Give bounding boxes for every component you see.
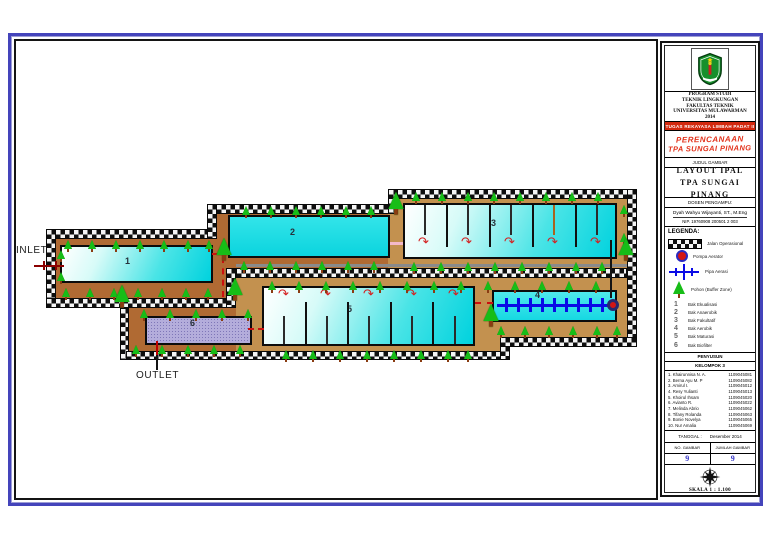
inlet-pipe	[43, 261, 45, 270]
tree-icon	[184, 240, 192, 249]
member-nim: 1109045069	[728, 423, 752, 429]
dosen-block: Dyah Wahyu Wijayanti, ST., M.Eng NIP. 19…	[665, 208, 755, 227]
operational-road	[627, 189, 637, 347]
legend-number-label: Bak Fakultatif	[688, 318, 715, 323]
baffle	[489, 205, 491, 247]
institution-block: PROGRAM STUDI TEKNIK LINGKUNGAN FAKULTAS…	[665, 92, 755, 122]
tree-icon	[491, 262, 499, 271]
tree-icon	[613, 326, 621, 335]
tree-icon	[136, 240, 144, 249]
inlet-pipe	[55, 261, 57, 270]
flow-arrow-icon: ↷	[590, 236, 601, 249]
tree-icon	[292, 206, 300, 215]
flow-arrow-icon: ↷	[363, 288, 374, 301]
aeration-tick	[529, 298, 532, 312]
baffle	[347, 302, 349, 344]
flow-arrow-icon: ↷	[278, 288, 289, 301]
tree-icon	[344, 261, 352, 270]
dosen-label: DOSEN PENGAMPU:	[665, 198, 755, 208]
tree-icon	[282, 350, 290, 359]
tree-icon	[160, 240, 168, 249]
operational-road	[46, 229, 216, 239]
tree-icon	[568, 192, 576, 201]
baffle	[424, 205, 426, 235]
tree-icon	[295, 281, 303, 290]
legend-item-label: Pompa Aerator	[693, 254, 723, 259]
baffle	[432, 302, 434, 344]
legend-number: 3	[668, 317, 684, 324]
tree-icon	[227, 278, 242, 295]
tree-icon	[236, 345, 244, 354]
tree-icon	[572, 262, 580, 271]
baffle	[575, 205, 577, 247]
tree-icon	[464, 350, 472, 359]
aeration-tick	[589, 298, 592, 312]
university-logo-icon	[691, 48, 729, 90]
tree-icon	[518, 262, 526, 271]
document-page: INLET OUTLET 123456↷↷↷↷↷↷↷↷↷↷ PROGRA	[0, 0, 768, 543]
operational-road	[207, 204, 217, 239]
tree-icon	[490, 192, 498, 201]
no-gambar-label: NO. GAMBAR	[665, 443, 710, 454]
legend-item: Pompa Aerator	[668, 250, 752, 262]
tree-icon	[114, 285, 129, 302]
legend-item: Jalan Operasional	[668, 239, 752, 249]
road-icon	[668, 239, 702, 249]
tree-icon	[166, 309, 174, 318]
legend-number-item: 4Bak Aerobik	[668, 325, 752, 332]
tree-icon	[192, 309, 200, 318]
baffle	[467, 205, 469, 235]
baffle	[390, 302, 392, 344]
aeration-tick	[577, 298, 580, 312]
tree-icon	[438, 192, 446, 201]
pipe-connection	[248, 328, 264, 330]
legend-number-item: 2Bak Anaerobik	[668, 309, 752, 316]
tree-icon	[511, 281, 519, 290]
legend-number: 2	[668, 309, 684, 316]
tree-icon	[292, 261, 300, 270]
tree-icon	[266, 261, 274, 270]
legend-number: 5	[668, 333, 684, 340]
penyusun-label: PENYUSUN	[665, 353, 755, 362]
drawing-title-line2: TPA SUNGAI PINANG	[665, 177, 755, 201]
tree-icon	[592, 281, 600, 290]
legend-number-label: Bak Maturasi	[688, 334, 714, 339]
tree-icon	[205, 240, 213, 249]
member-list: 1. Khairunnisa N. A.11090450812. Berna A…	[665, 371, 755, 431]
tree-icon	[388, 192, 403, 209]
tree-icon	[376, 281, 384, 290]
scale-label: SKALA 1 : 1.100	[689, 488, 731, 493]
tree-icon	[309, 350, 317, 359]
title-block: PROGRAM STUDI TEKNIK LINGKUNGAN FAKULTAS…	[660, 41, 760, 497]
flow-arrow-icon: ↷	[547, 236, 558, 249]
legend-numbers: 1Bak Ekualisasi2Bak Anaerobik3Bak Fakult…	[668, 300, 752, 350]
tree-icon	[497, 326, 505, 335]
basin-number: 4	[535, 290, 540, 300]
tree-icon	[64, 240, 72, 249]
baffle	[553, 205, 555, 235]
baffle	[532, 205, 534, 247]
legend-number-label: Bak Aerobik	[688, 326, 712, 331]
drawing-title-line1: LAYOUT IPAL	[676, 165, 743, 177]
no-gambar-cell: NO. GAMBAR 9	[665, 443, 711, 464]
aerator-pump-icon	[607, 299, 619, 311]
tree-icon	[464, 192, 472, 201]
tree-icon	[216, 238, 231, 255]
tree-icon	[430, 281, 438, 290]
compass-block: SKALA 1 : 1.100	[665, 465, 755, 494]
baffle	[596, 205, 598, 235]
tree-icon	[370, 261, 378, 270]
tree-icon	[240, 261, 248, 270]
flow-arrow-icon: ↷	[461, 236, 472, 249]
tree-icon	[342, 206, 350, 215]
tree-icon	[390, 350, 398, 359]
jumlah-gambar-cell: JUMLAH GAMBAR 9	[711, 443, 756, 464]
legend-item: Pohon (Buffer Zone)	[668, 281, 752, 298]
tree-icon	[218, 309, 226, 318]
tree-icon	[242, 206, 250, 215]
tree-icon	[318, 261, 326, 270]
title-block-inner: PROGRAM STUDI TEKNIK LINGKUNGAN FAKULTAS…	[664, 45, 756, 493]
tree-icon	[158, 288, 166, 297]
tree-icon	[62, 288, 70, 297]
tree-icon	[158, 345, 166, 354]
tree-icon	[204, 288, 212, 297]
aeration-tick	[553, 298, 556, 312]
baffle	[283, 316, 285, 344]
tree-icon	[410, 262, 418, 271]
tree-icon	[267, 206, 275, 215]
tree-icon	[57, 272, 65, 281]
member-name: 10. Nur Amalia	[668, 423, 696, 429]
tree-icon	[545, 326, 553, 335]
date-value: Desember 2014	[710, 434, 742, 439]
tree-icon	[403, 281, 411, 290]
tree-icon	[457, 281, 465, 290]
tree-icon	[112, 240, 120, 249]
dosen-name: Dyah Wahyu Wijayanti, ST., M.Eng	[673, 211, 747, 218]
no-gambar-value: 9	[665, 454, 710, 464]
tree-icon	[88, 240, 96, 249]
legend-title: LEGENDA:	[668, 229, 752, 235]
tree-icon	[134, 288, 142, 297]
aeration-tick	[541, 298, 544, 312]
drawing-title: LAYOUT IPAL TPA SUNGAI PINANG	[665, 168, 755, 198]
project-line2: TPA SUNGAI PINANG	[668, 143, 752, 153]
tree-icon	[363, 350, 371, 359]
tree-icon	[565, 281, 573, 290]
site-plan: INLET OUTLET 123456↷↷↷↷↷↷↷↷↷↷	[0, 0, 768, 543]
tree-icon	[444, 350, 452, 359]
operational-road	[500, 337, 637, 347]
tree-icon	[545, 262, 553, 271]
legend-number: 1	[668, 301, 684, 308]
flow-arrow-icon: ↷	[418, 236, 429, 249]
baffle	[368, 316, 370, 344]
legend-number-item: 6Bak Biofilter	[668, 342, 752, 349]
legend-item-label: Pohon (Buffer Zone)	[691, 287, 732, 292]
basin-number: 3	[491, 218, 496, 228]
baffle	[510, 205, 512, 235]
inlet-pipe	[34, 265, 64, 267]
tree-icon	[412, 192, 420, 201]
tree-icon	[322, 281, 330, 290]
tree-icon	[618, 238, 633, 255]
tree-icon	[367, 206, 375, 215]
tree-icon	[417, 350, 425, 359]
aeration-tick	[565, 298, 568, 312]
legend-item: Pipa Aerasi	[668, 264, 752, 280]
basin-6	[145, 316, 252, 345]
legend-number-item: 5Bak Maturasi	[668, 333, 752, 340]
pump-icon	[676, 250, 688, 262]
logo-row	[665, 46, 755, 92]
legend-item-label: Jalan Operasional	[707, 241, 743, 246]
baffle	[411, 316, 413, 344]
basin-2	[228, 215, 390, 258]
tree-icon	[244, 309, 252, 318]
pipe-connection	[390, 242, 403, 245]
tree-icon	[182, 288, 190, 297]
assignment-banner: TUGAS REKAYASA LIMBAH PADAT II	[665, 122, 755, 131]
tree-icon	[437, 262, 445, 271]
basin-number: 1	[125, 256, 130, 266]
tree-icon	[521, 326, 529, 335]
jumlah-gambar-label: JUMLAH GAMBAR	[711, 443, 756, 454]
project-logo-text: PERENCANAAN TPA SUNGAI PINANG	[665, 131, 755, 158]
basin-number: 2	[290, 227, 295, 237]
outlet-label: OUTLET	[136, 370, 179, 381]
tree-icon	[132, 345, 140, 354]
tree-icon	[672, 281, 686, 298]
pipe-connection	[156, 355, 158, 370]
legend-number-label: Bak Anaerobik	[688, 310, 717, 315]
aeration-tick	[601, 298, 604, 312]
tree-icon	[542, 192, 550, 201]
tree-icon	[140, 309, 148, 318]
tree-icon	[464, 262, 472, 271]
tree-icon	[184, 345, 192, 354]
legend-item-label: Pipa Aerasi	[705, 269, 728, 274]
aeration-tick	[505, 298, 508, 312]
pipe-connection	[610, 240, 612, 298]
baffle	[326, 316, 328, 344]
tree-icon	[484, 281, 492, 290]
date-label: TANGGAL :	[678, 434, 702, 439]
tree-icon	[593, 326, 601, 335]
tree-icon	[594, 192, 602, 201]
tree-icon	[349, 281, 357, 290]
legend-number: 4	[668, 325, 684, 332]
tree-icon	[569, 326, 577, 335]
legend-number-item: 3Bak Fakultatif	[668, 317, 752, 324]
legend-number-label: Bak Biofilter	[688, 343, 712, 348]
baffle	[446, 205, 448, 247]
compass-icon	[699, 466, 721, 488]
legend-items: Jalan OperasionalPompa AeratorPipa Aeras…	[668, 237, 752, 300]
basin-1	[60, 245, 213, 283]
tree-icon	[317, 206, 325, 215]
member-row: 10. Nur Amalia1109045069	[668, 423, 752, 429]
legend-number-item: 1Bak Ekualisasi	[668, 301, 752, 308]
inlet-label: INLET	[16, 245, 47, 256]
sheet-number-row: NO. GAMBAR 9 JUMLAH GAMBAR 9	[665, 443, 755, 465]
date-row: TANGGAL : Desember 2014	[665, 431, 755, 443]
tree-icon	[516, 192, 524, 201]
tree-icon	[620, 205, 628, 214]
institution-line: 2014	[705, 115, 715, 121]
baffle	[454, 316, 456, 344]
aeration-tick	[517, 298, 520, 312]
legend-number: 6	[668, 342, 684, 349]
baffle	[305, 302, 307, 344]
tree-icon	[57, 250, 65, 259]
tree-icon	[483, 304, 498, 321]
tree-icon	[210, 345, 218, 354]
tree-icon	[538, 281, 546, 290]
legend-number-label: Bak Ekualisasi	[688, 302, 717, 307]
tree-icon	[336, 350, 344, 359]
dosen-nip: NIP. 19760908 200501 2 003	[682, 219, 738, 224]
pipe-icon	[668, 264, 700, 280]
tree-icon	[268, 281, 276, 290]
tree-icon	[598, 262, 606, 271]
pipe-connection	[222, 257, 224, 297]
legend-section: LEGENDA: Jalan OperasionalPompa AeratorP…	[665, 227, 755, 353]
tree-icon	[86, 288, 94, 297]
jumlah-gambar-value: 9	[711, 454, 756, 464]
group-label: KELOMPOK 3	[665, 362, 755, 371]
flow-arrow-icon: ↷	[504, 236, 515, 249]
